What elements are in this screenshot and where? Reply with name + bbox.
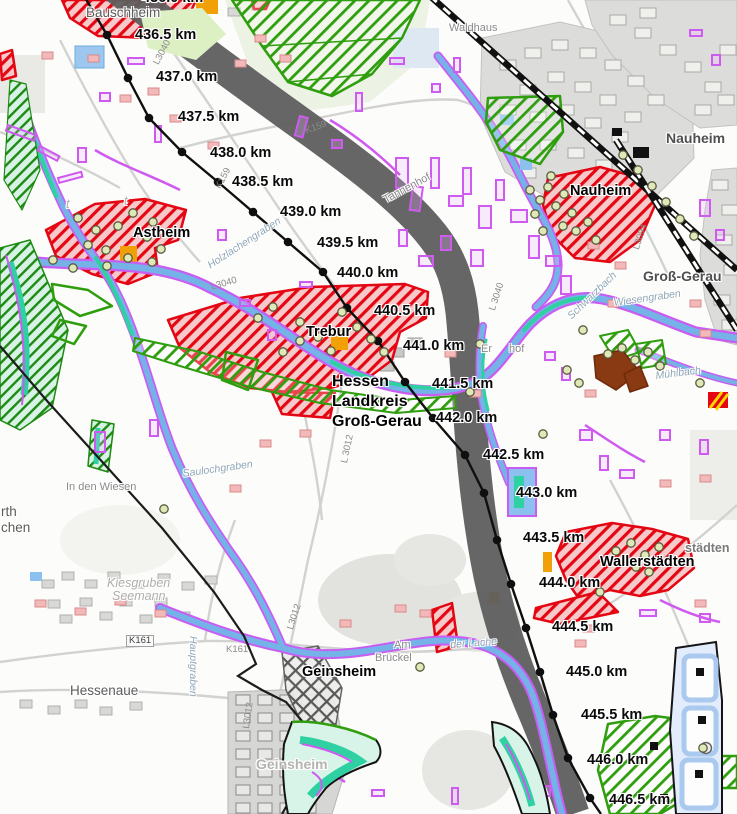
map-canvas	[0, 0, 737, 814]
hazard-marker	[708, 392, 728, 410]
station-icon	[633, 147, 649, 158]
map-view: 436.0 km436.5 km437.0 km437.5 km438.0 km…	[0, 0, 737, 814]
